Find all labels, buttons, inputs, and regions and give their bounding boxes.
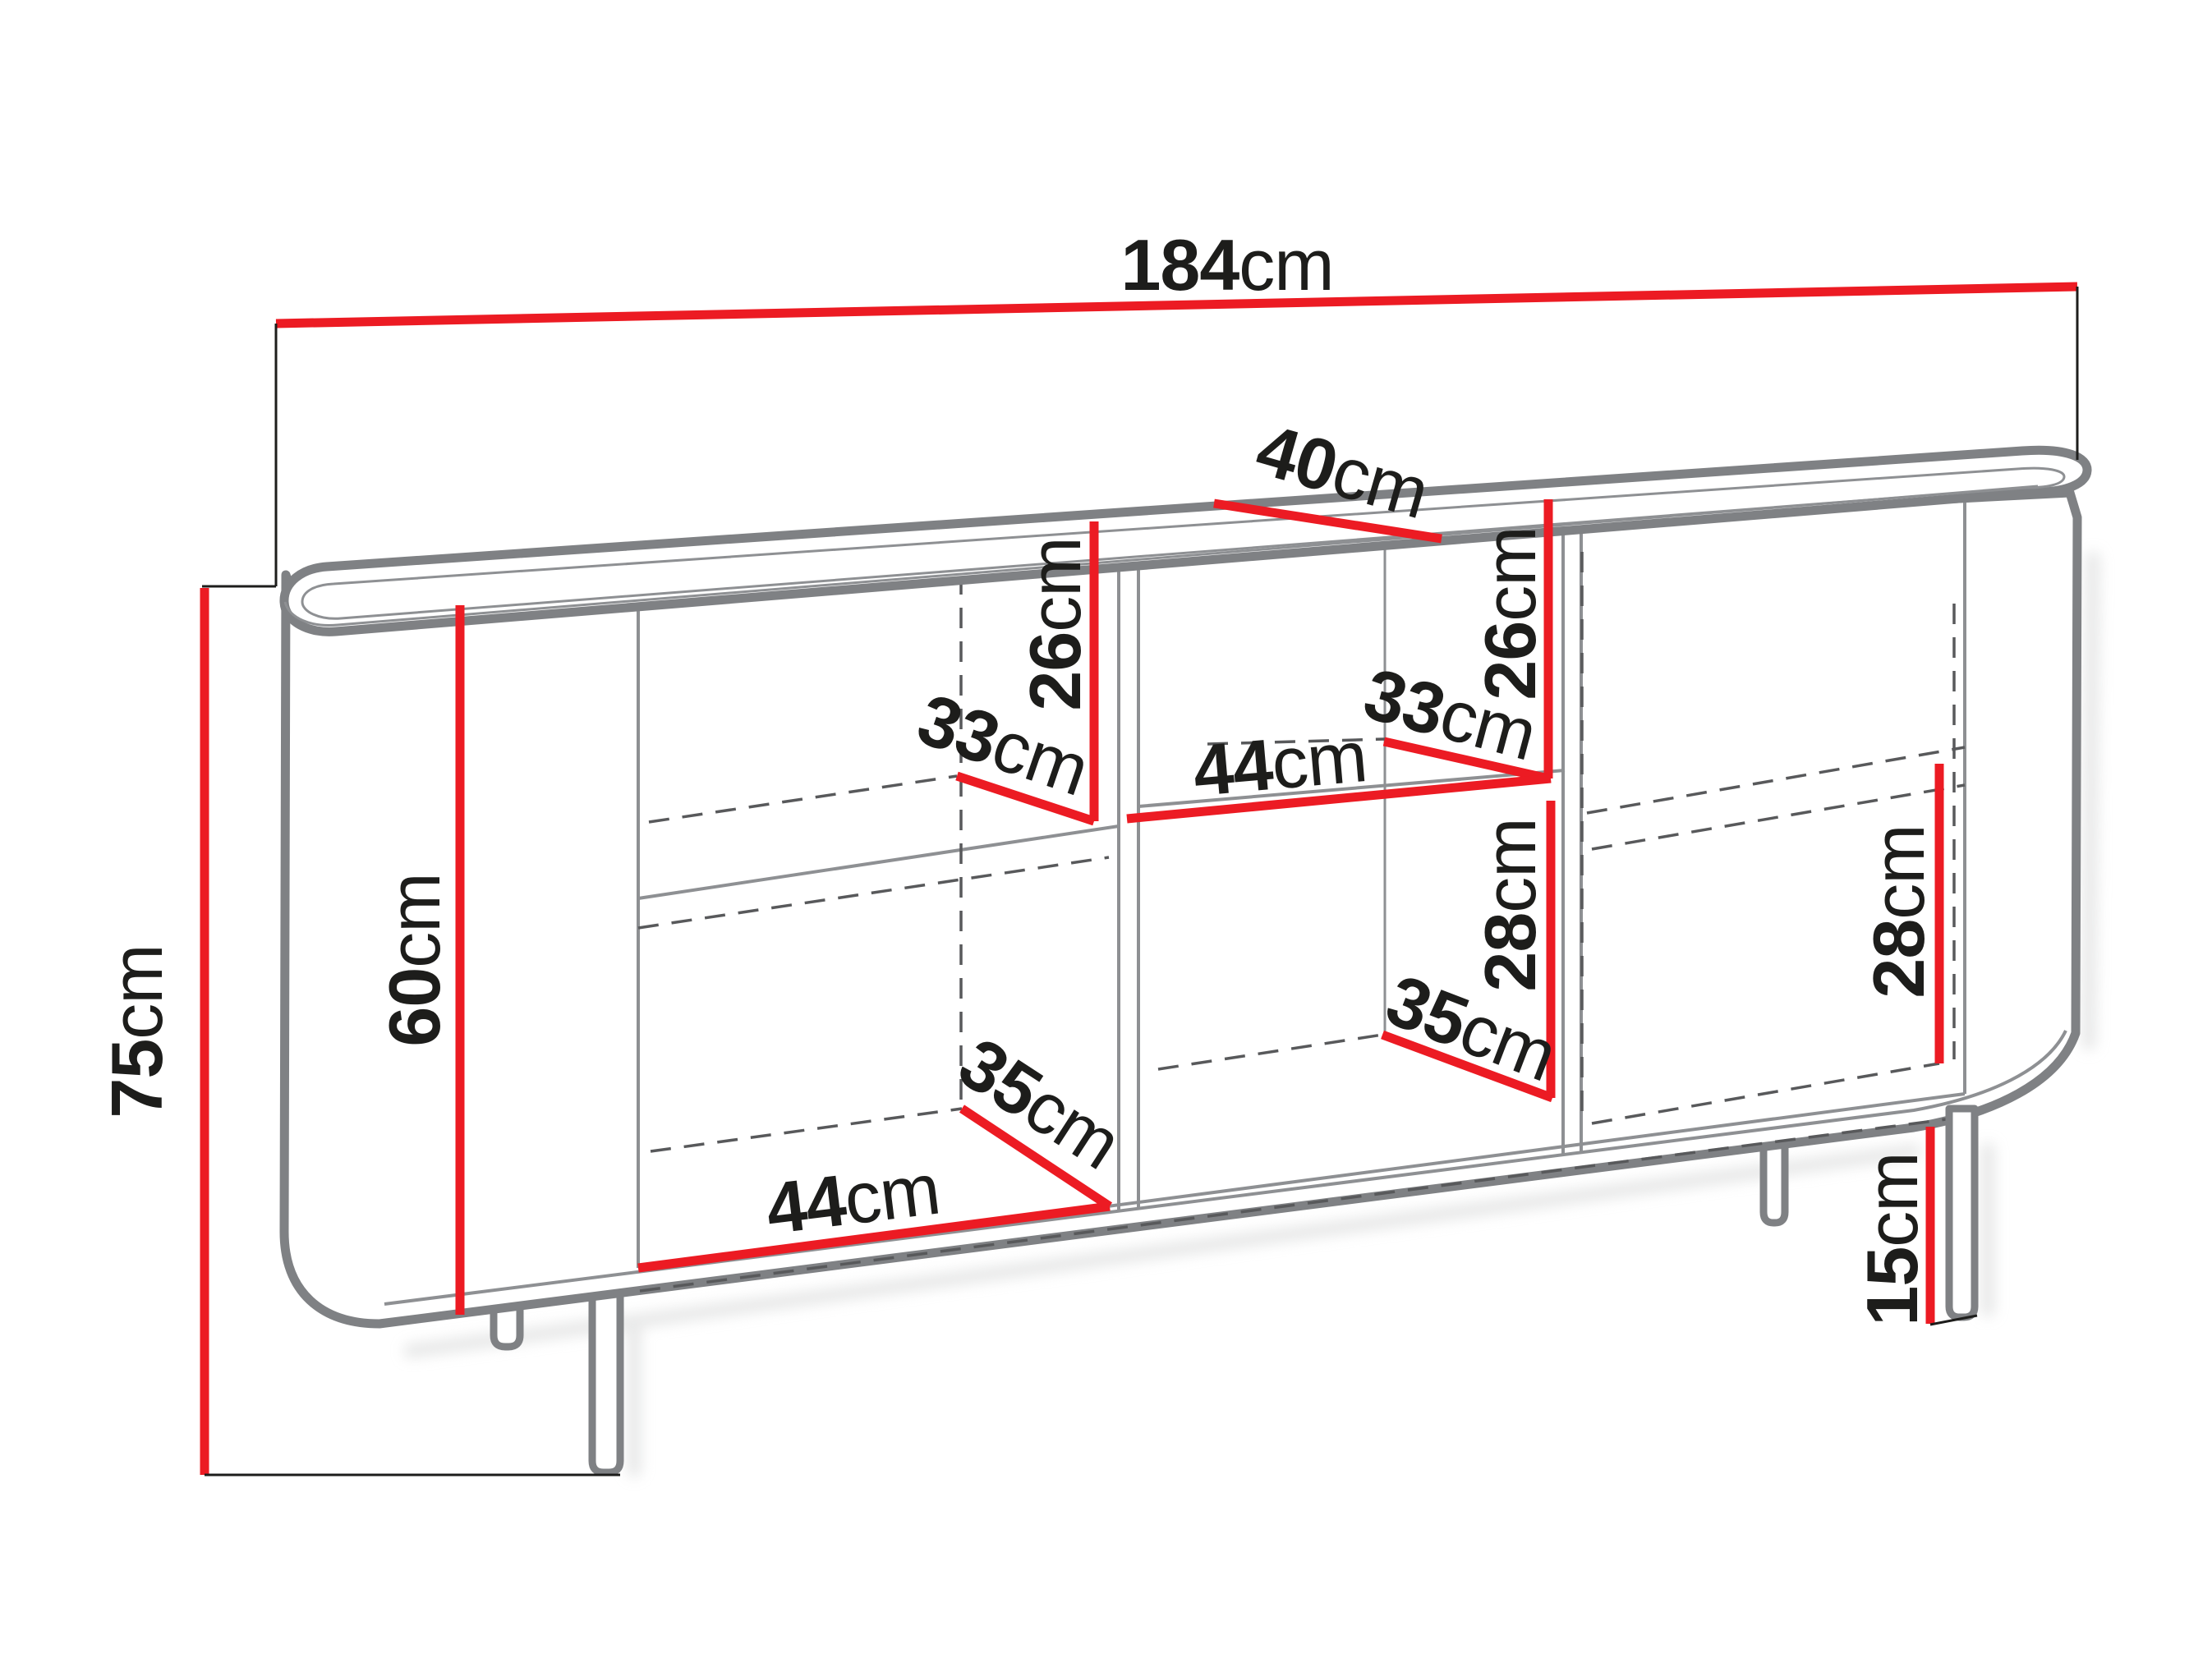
label-height-total: 75cm [96, 944, 177, 1118]
front-right-leg [1949, 1109, 1975, 1317]
label-center-shelf-width: 44cm [1190, 715, 1370, 811]
label-interior-height: 60cm [374, 873, 455, 1046]
label-leg-height: 15cm [1851, 1152, 1933, 1325]
right-side-shadow [2089, 558, 2093, 1043]
label-left-upper-height: 26cm [1014, 537, 1096, 710]
label-center-upper-height: 26cm [1469, 526, 1551, 700]
label-right-lower-height: 28cm [1858, 824, 1939, 998]
label-center-lower-height: 28cm [1469, 818, 1551, 991]
furniture-dimension-diagram: 184cm 40cm 75cm 60cm 26cm 33cm 35cm 44cm… [0, 0, 2212, 1658]
diagram-canvas: 184cm 40cm 75cm 60cm 26cm 33cm 35cm 44cm… [0, 0, 2212, 1658]
front-left-leg [592, 1281, 620, 1472]
label-width-total: 184cm [1120, 224, 1333, 305]
